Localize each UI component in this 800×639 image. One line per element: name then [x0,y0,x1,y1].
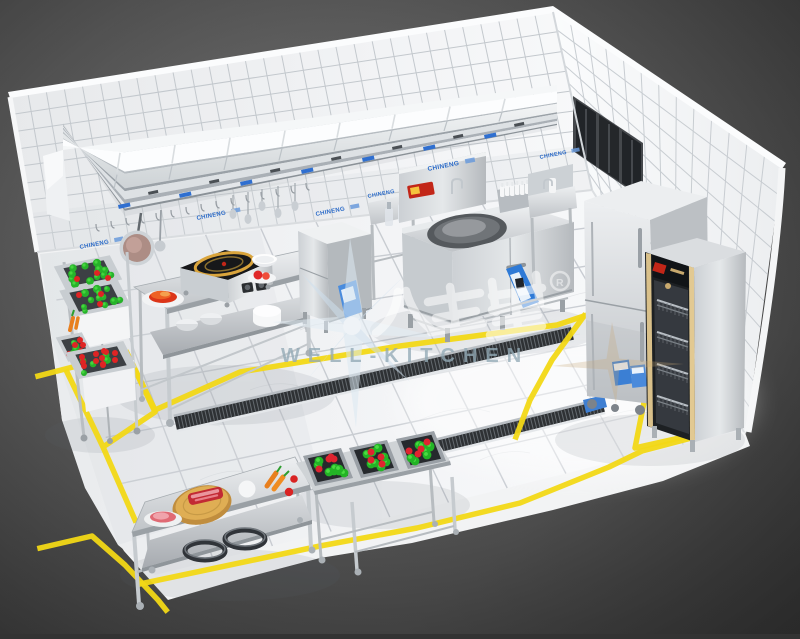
svg-text:R: R [556,277,564,289]
svg-text:WELL-KITCHEN: WELL-KITCHEN [281,345,529,367]
